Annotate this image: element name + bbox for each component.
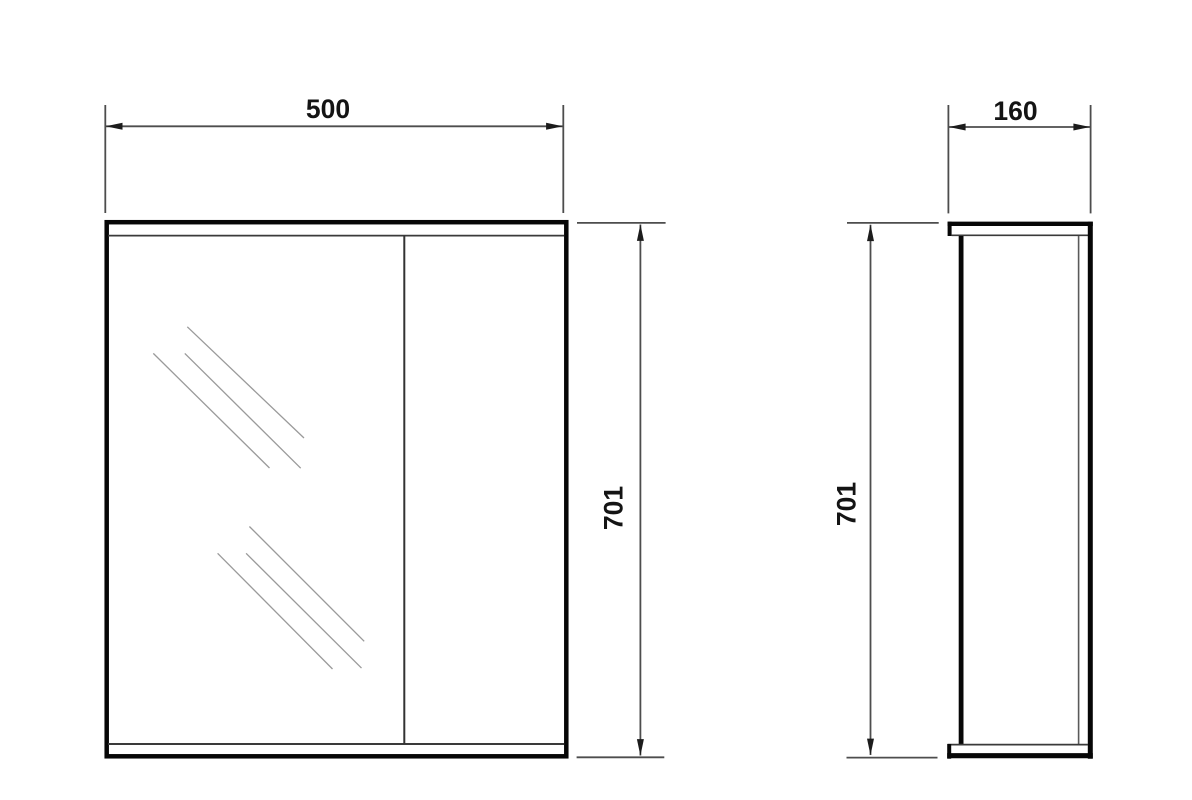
svg-text:701: 701 <box>599 486 629 530</box>
svg-text:701: 701 <box>832 482 862 526</box>
svg-text:500: 500 <box>306 94 350 124</box>
svg-text:160: 160 <box>993 96 1037 126</box>
